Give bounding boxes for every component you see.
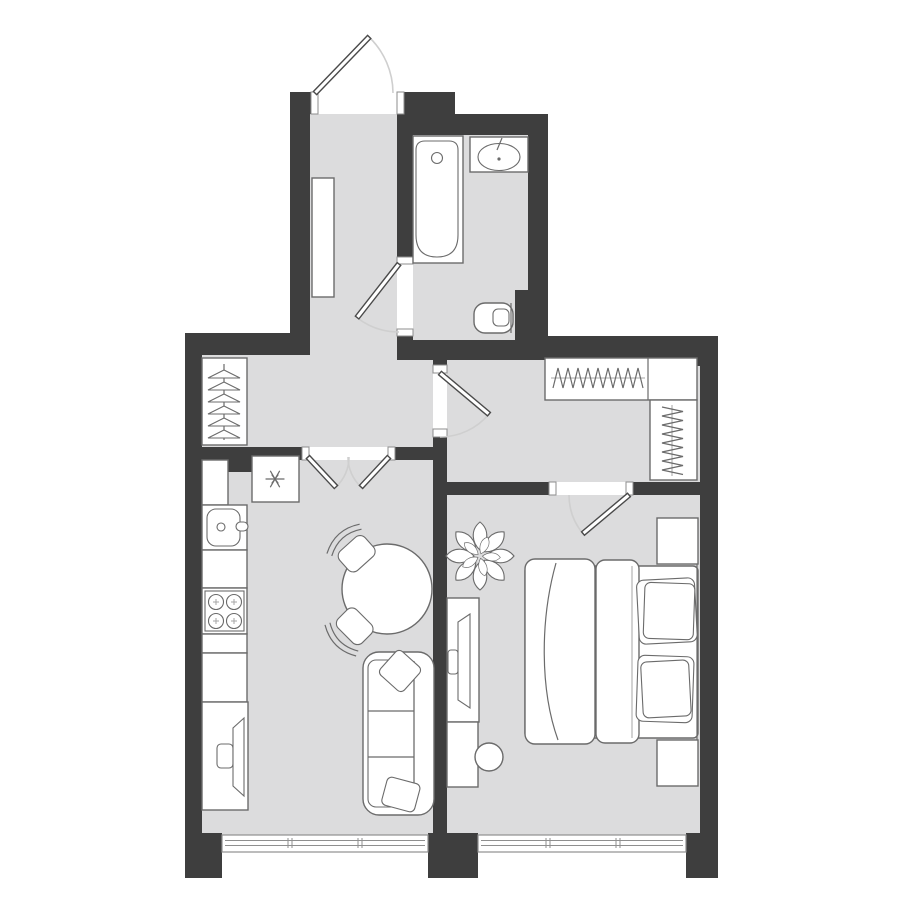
wall-segment: [397, 340, 548, 360]
door-jamb: [433, 365, 447, 373]
wall-segment: [395, 447, 447, 460]
pillow: [636, 655, 694, 723]
exterior-wall-left: [185, 333, 202, 853]
interior-wall-divider: [433, 437, 447, 835]
hall-cabinet: [312, 178, 334, 297]
bathroom-opening: [397, 257, 413, 336]
wall-segment: [447, 482, 549, 495]
sofa: [363, 648, 434, 815]
entry-opening: [311, 92, 404, 114]
fridge: [252, 456, 299, 502]
nightstand: [657, 518, 698, 564]
nightstand: [657, 740, 698, 786]
tv-bracket: [217, 744, 233, 768]
pillow: [636, 578, 698, 645]
wall-segment: [185, 333, 310, 355]
bedroom-opening: [549, 482, 633, 495]
wall-segment: [633, 482, 700, 495]
blanket: [525, 559, 595, 744]
desk: [447, 598, 479, 722]
door-jamb: [549, 482, 556, 495]
monitor-stand: [448, 650, 458, 674]
stove: [202, 588, 247, 634]
monitor-icon: [458, 614, 470, 708]
coat-rack: [202, 358, 247, 445]
kitchen-counter: [202, 634, 247, 653]
kitchen-faucet: [217, 523, 225, 531]
door-jamb: [397, 257, 413, 264]
door-jamb: [433, 429, 447, 437]
wall-segment: [433, 352, 447, 365]
wall-segment: [528, 114, 548, 290]
wall-segment: [397, 114, 413, 257]
kitchen-counter: [202, 653, 247, 702]
door-jamb: [397, 329, 413, 336]
exterior-wall-right: [700, 336, 718, 853]
stool: [475, 743, 503, 771]
bathtub-drain: [432, 153, 443, 164]
wall-segment: [404, 114, 548, 135]
wall-segment: [228, 460, 252, 472]
wall-segment: [404, 92, 455, 114]
sink-vanity: [470, 137, 528, 172]
door-jamb: [397, 92, 404, 114]
bed: [525, 559, 698, 744]
wall-segment: [548, 336, 718, 358]
bedroom-window: [478, 835, 686, 852]
door-jamb: [311, 92, 318, 114]
wall-pier: [686, 833, 718, 878]
toilet: [474, 303, 513, 333]
floor-plan: [0, 0, 900, 900]
wall-segment: [290, 92, 310, 355]
wall-pier: [185, 833, 222, 878]
entry-door: [313, 35, 393, 94]
bathtub: [413, 136, 463, 263]
entry-door-leaf: [313, 35, 370, 94]
kitchen-counter: [202, 460, 228, 505]
kitchen-faucet-body: [236, 522, 248, 531]
sink-basin: [478, 144, 520, 171]
duvet: [596, 560, 639, 743]
sink-drain: [497, 157, 500, 160]
wardrobe-side: [650, 400, 697, 480]
desk-cabinet: [447, 722, 478, 787]
floor-plan-drawing: [0, 0, 900, 900]
wall-pier: [428, 833, 478, 878]
wardrobe-top: [545, 358, 697, 400]
tv-stand: [202, 702, 248, 810]
living-room-window: [222, 835, 428, 852]
wall-segment: [290, 92, 312, 114]
wall-segment: [515, 290, 548, 347]
kitchen-counter: [202, 550, 247, 588]
tv-icon: [233, 718, 244, 796]
kitchen-sink-unit: [202, 505, 248, 550]
